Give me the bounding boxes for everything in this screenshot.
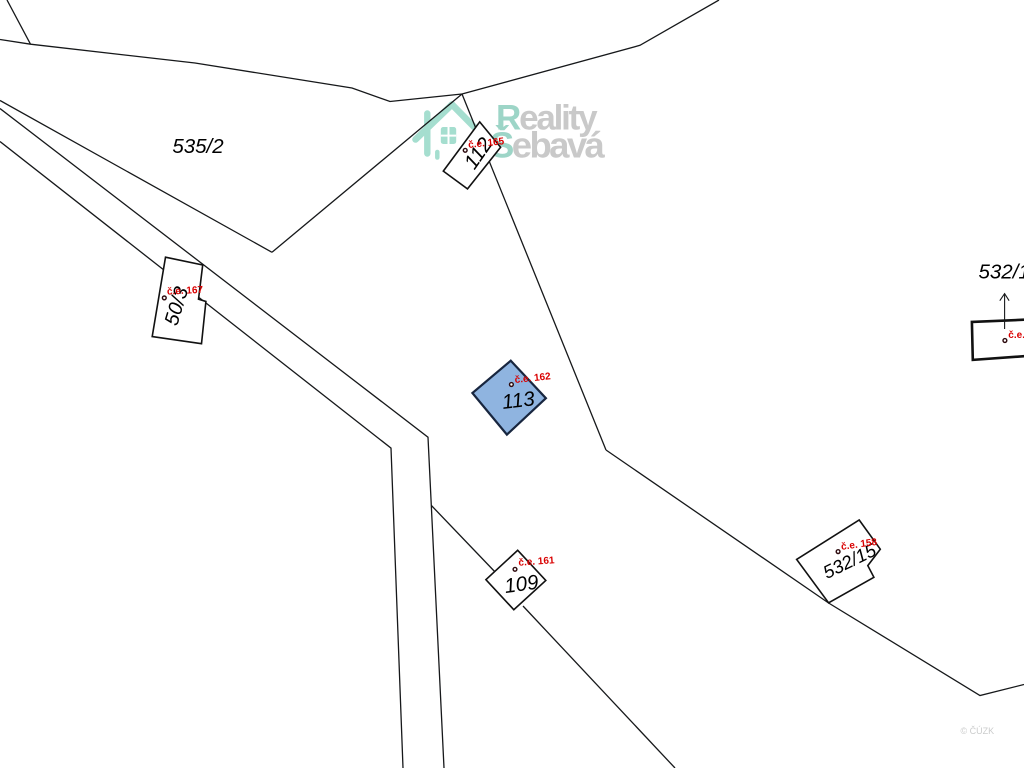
svg-text:532/1: 532/1 xyxy=(979,260,1024,283)
svg-text:109: 109 xyxy=(503,571,540,599)
svg-text:535/2: 535/2 xyxy=(172,135,224,158)
svg-text:č.e. 161: č.e. 161 xyxy=(518,555,555,569)
svg-text:č.e. 16: č.e. 16 xyxy=(1008,330,1024,341)
svg-text:č.e. 167: č.e. 167 xyxy=(167,285,204,298)
svg-text:Šebavá: Šebavá xyxy=(490,124,606,166)
svg-text:© ČÚZK: © ČÚZK xyxy=(961,726,995,736)
svg-text:113: 113 xyxy=(501,387,537,414)
